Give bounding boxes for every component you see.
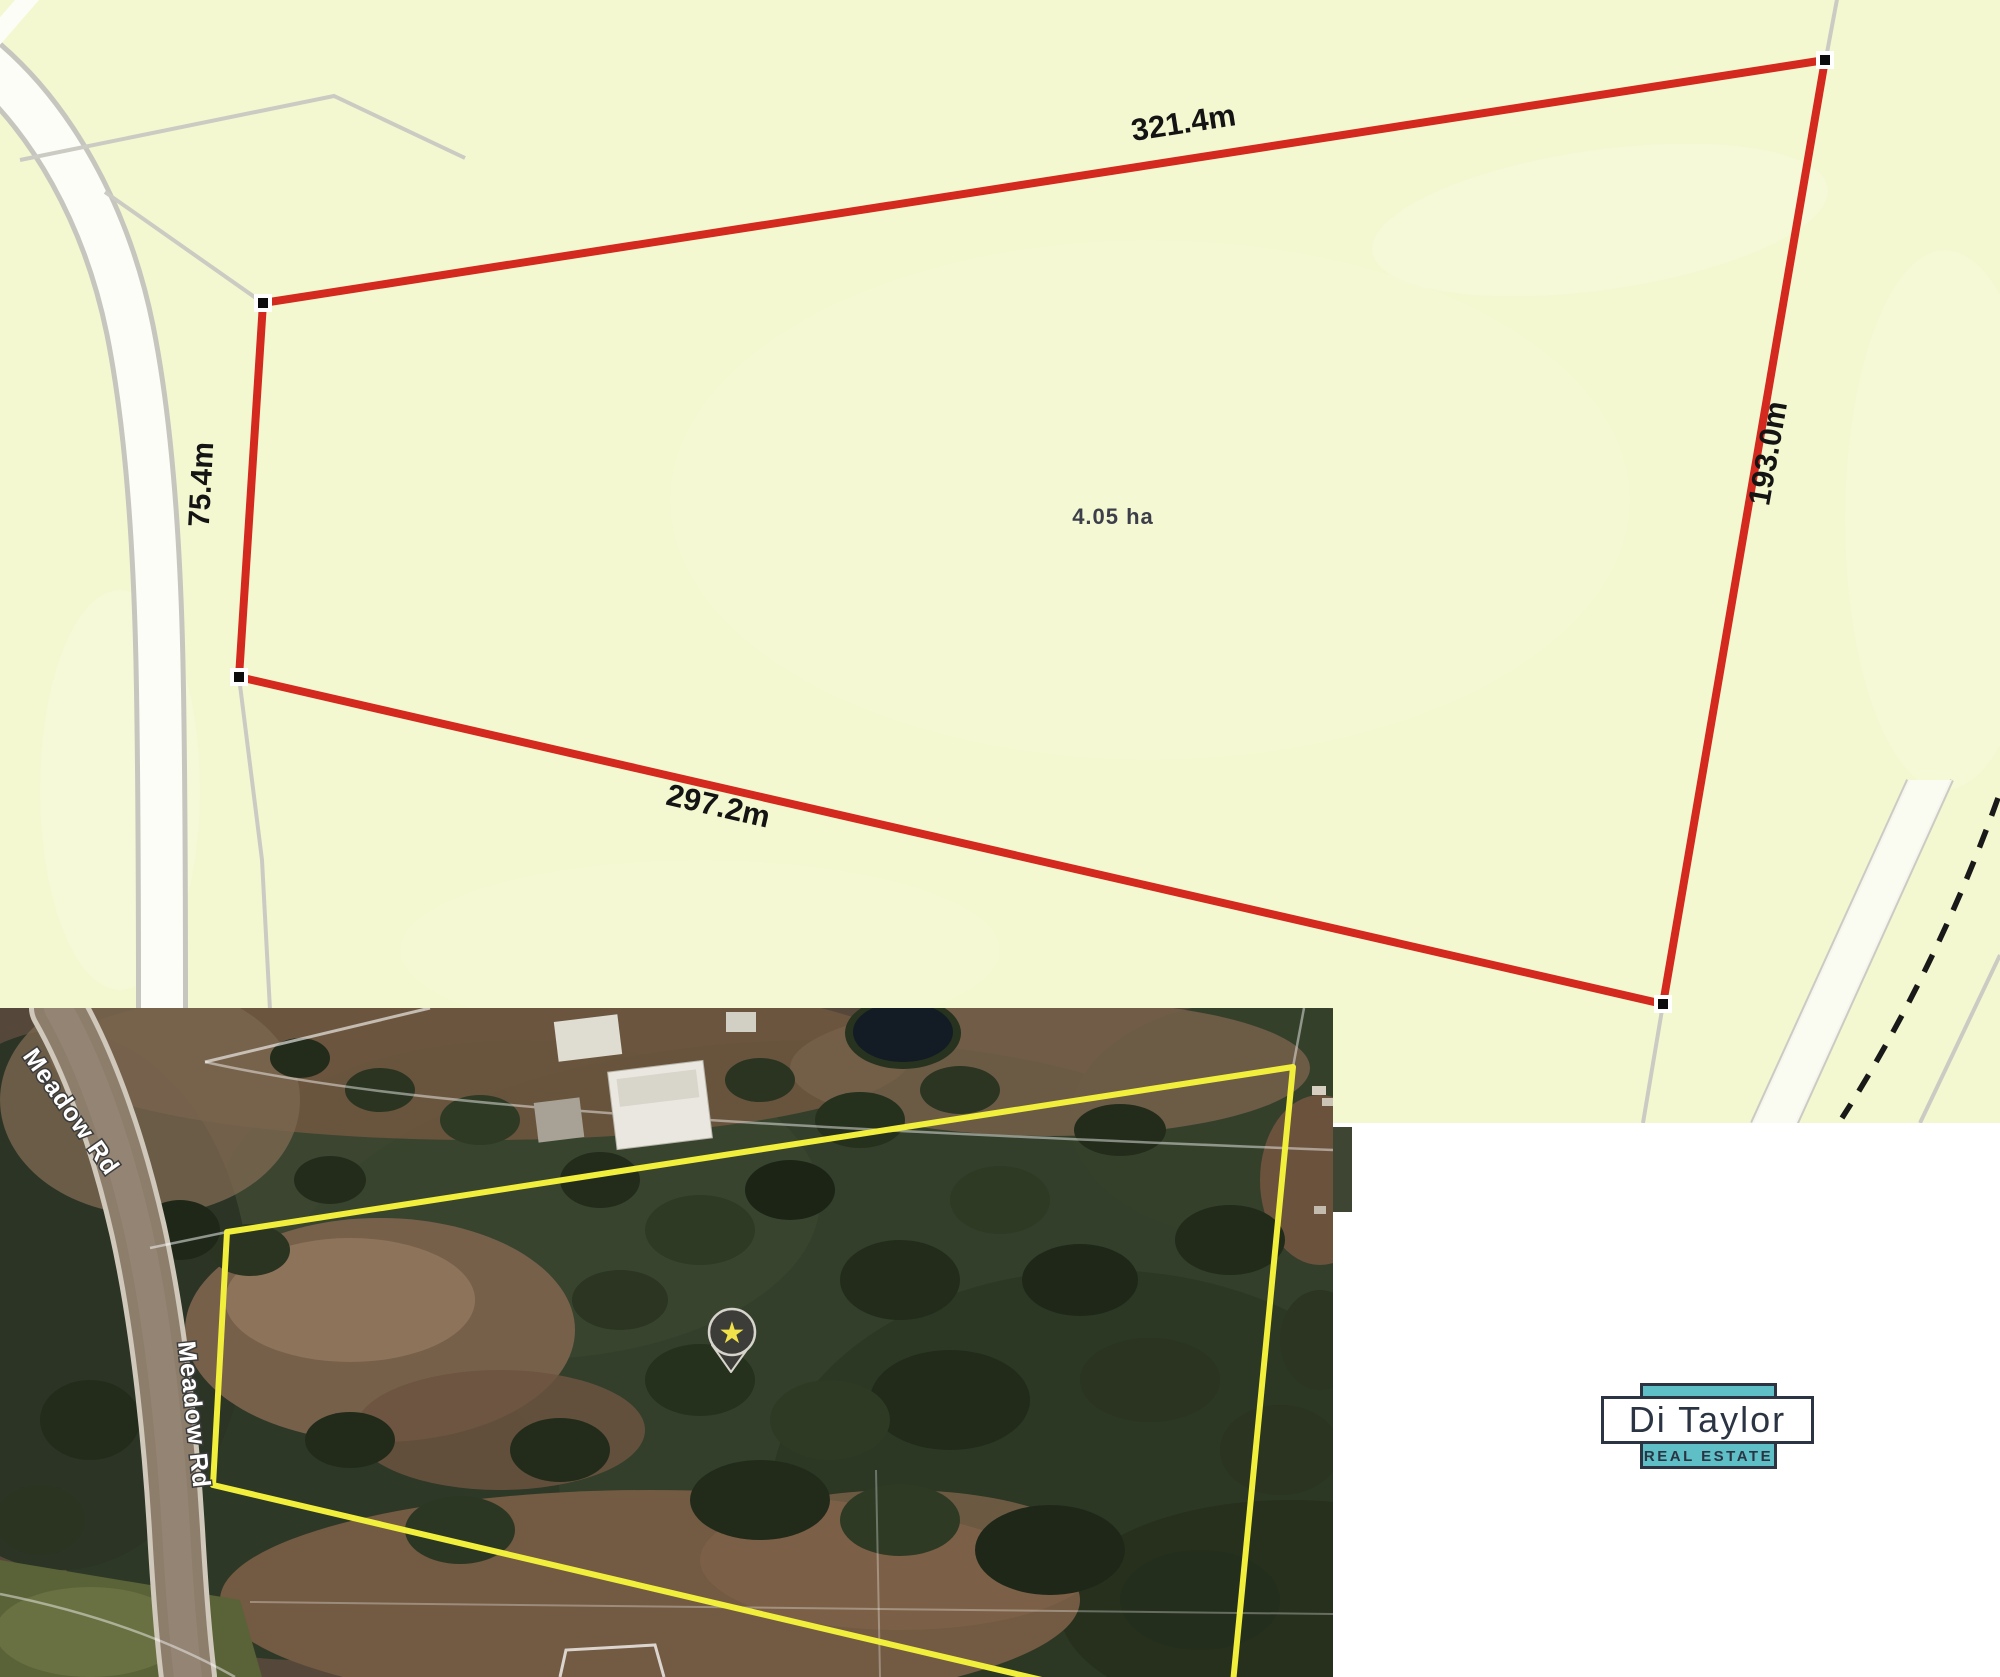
property-flyer: 321.4m 193.0m 297.2m 75.4m 4.05 ha [0, 0, 2000, 1677]
vertex-marker [1818, 53, 1832, 67]
vertex-marker [1656, 997, 1670, 1011]
logo-white-box: Di Taylor [1601, 1396, 1814, 1444]
brand-name: Di Taylor [1629, 1399, 1786, 1441]
plan-map-canvas: 321.4m 193.0m 297.2m 75.4m 4.05 ha [0, 0, 2000, 1123]
satellite-map[interactable]: Meadow Rd Meadow Rd ★ [0, 1008, 1333, 1677]
star-icon: ★ [719, 1317, 746, 1350]
dimension-label-west: 75.4m [183, 441, 220, 528]
satellite-canvas: Meadow Rd Meadow Rd ★ [0, 1008, 1333, 1677]
brand-tagline: REAL ESTATE [1640, 1444, 1777, 1469]
plan-map[interactable]: 321.4m 193.0m 297.2m 75.4m 4.05 ha [0, 0, 2000, 1123]
vertex-marker [232, 670, 246, 684]
area-label: 4.05 ha [1072, 504, 1154, 529]
vertex-marker [256, 296, 270, 310]
agency-logo: Di Taylor REAL ESTATE [1601, 1383, 1816, 1471]
satellite-edge-sliver [1333, 1127, 1352, 1212]
